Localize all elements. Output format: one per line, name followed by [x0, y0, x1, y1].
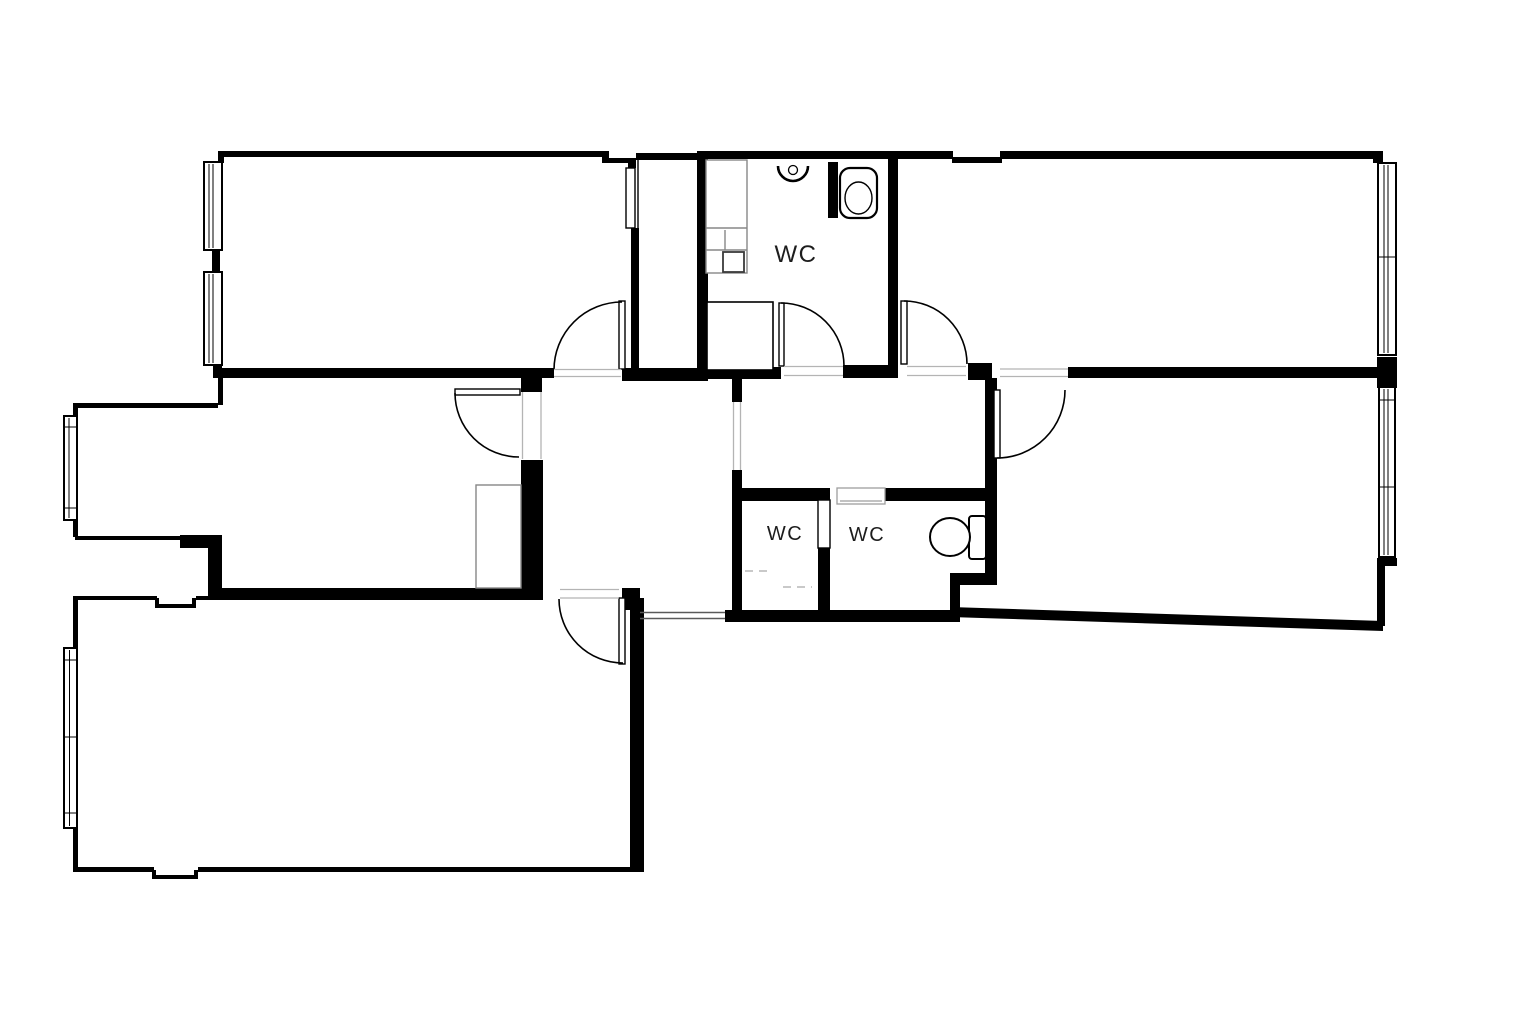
room-label-wc-top: WC	[775, 241, 818, 268]
shower-tray-icon	[707, 302, 773, 370]
wall-segment	[952, 157, 1002, 163]
door-arc	[455, 393, 519, 457]
wall-segment	[602, 151, 609, 163]
wall-segment	[210, 588, 543, 600]
toilet-icon-mid	[930, 516, 986, 559]
doors	[455, 168, 1065, 664]
wall-segment	[737, 488, 830, 501]
wall-segment	[1373, 151, 1383, 163]
pocket-door-icon	[837, 488, 885, 504]
door-leaf	[619, 598, 625, 664]
wall-segment	[73, 867, 154, 872]
cabinet-box	[723, 252, 744, 272]
sink-drain	[789, 166, 798, 175]
wall-segment	[196, 596, 212, 600]
wall-segment	[73, 828, 78, 872]
window-frame	[64, 416, 77, 520]
room-label-wc-mid-right: WC	[849, 524, 885, 546]
door-arc	[904, 301, 967, 364]
wall-segment	[75, 403, 218, 408]
window-top-left-1	[204, 162, 222, 250]
wall-segment	[194, 870, 198, 879]
toilet-icon-top	[840, 168, 877, 218]
door-leaf	[619, 301, 625, 369]
wall-segment	[1068, 367, 1380, 378]
wall-segment	[155, 604, 196, 608]
window-frame	[1378, 163, 1396, 355]
wall-segment	[950, 585, 960, 610]
toilet-bowl	[930, 518, 970, 556]
wall-segment	[885, 488, 987, 501]
door-arc	[781, 303, 844, 366]
wall-segment	[218, 151, 608, 157]
wall-segment	[73, 403, 78, 417]
wall-segment	[218, 378, 223, 405]
door-arc	[559, 599, 623, 663]
appliance-hints	[745, 571, 812, 587]
wall-segment	[622, 368, 705, 381]
wall-segment	[950, 607, 1383, 631]
wall-segment	[732, 378, 742, 402]
window-top-right	[1378, 163, 1396, 355]
wall-segment	[828, 162, 838, 218]
door-leaf	[455, 389, 520, 395]
wall-segment	[213, 365, 222, 378]
door-leaf	[994, 390, 1000, 458]
wall-segment	[628, 158, 636, 168]
wall-segment	[630, 598, 644, 872]
wall-segment	[192, 598, 196, 608]
wall-segment	[521, 460, 543, 590]
door-arc	[554, 302, 622, 370]
wall-segment	[888, 158, 898, 375]
window-mid-right	[1379, 387, 1395, 557]
sink-icon	[778, 166, 808, 182]
door-leaf	[901, 301, 907, 364]
window-bottom-left	[64, 648, 77, 828]
toilet-bowl	[845, 182, 872, 214]
wall-segment	[73, 596, 157, 600]
room-label-wc-mid-left: WC	[767, 523, 803, 545]
wall-segment	[73, 600, 78, 648]
wall-segment	[208, 535, 222, 598]
window-frame	[1379, 387, 1395, 557]
wall-segment	[705, 151, 953, 159]
door-leaf-wc	[818, 500, 830, 548]
toilet-tank	[969, 516, 986, 559]
floorplan-canvas: WC WC WC	[0, 0, 1536, 1024]
floorplan-svg: WC WC WC	[0, 0, 1536, 1024]
door-leaf	[779, 303, 784, 366]
wall-segment	[73, 520, 78, 537]
window-top-left-2	[204, 272, 222, 365]
cabinet-column	[706, 160, 747, 273]
wall-segment	[198, 867, 644, 872]
window-mid-left	[64, 416, 77, 520]
wall-segment	[950, 573, 997, 585]
wall-segment	[152, 875, 198, 879]
wall-segment	[725, 610, 960, 622]
door-leaf-closet	[626, 168, 635, 228]
wall-segment	[1377, 564, 1385, 626]
window-frame	[64, 648, 77, 828]
wall-segment	[968, 363, 992, 380]
wall-segment	[218, 368, 554, 378]
door-arc	[997, 390, 1065, 458]
wardrobe	[476, 485, 521, 588]
wall-segment	[521, 378, 542, 392]
wall-segment	[636, 153, 698, 160]
wall-segment	[818, 548, 830, 611]
wall-segment	[212, 250, 220, 272]
wall-segment	[75, 536, 182, 540]
wall-segment	[1000, 151, 1375, 159]
